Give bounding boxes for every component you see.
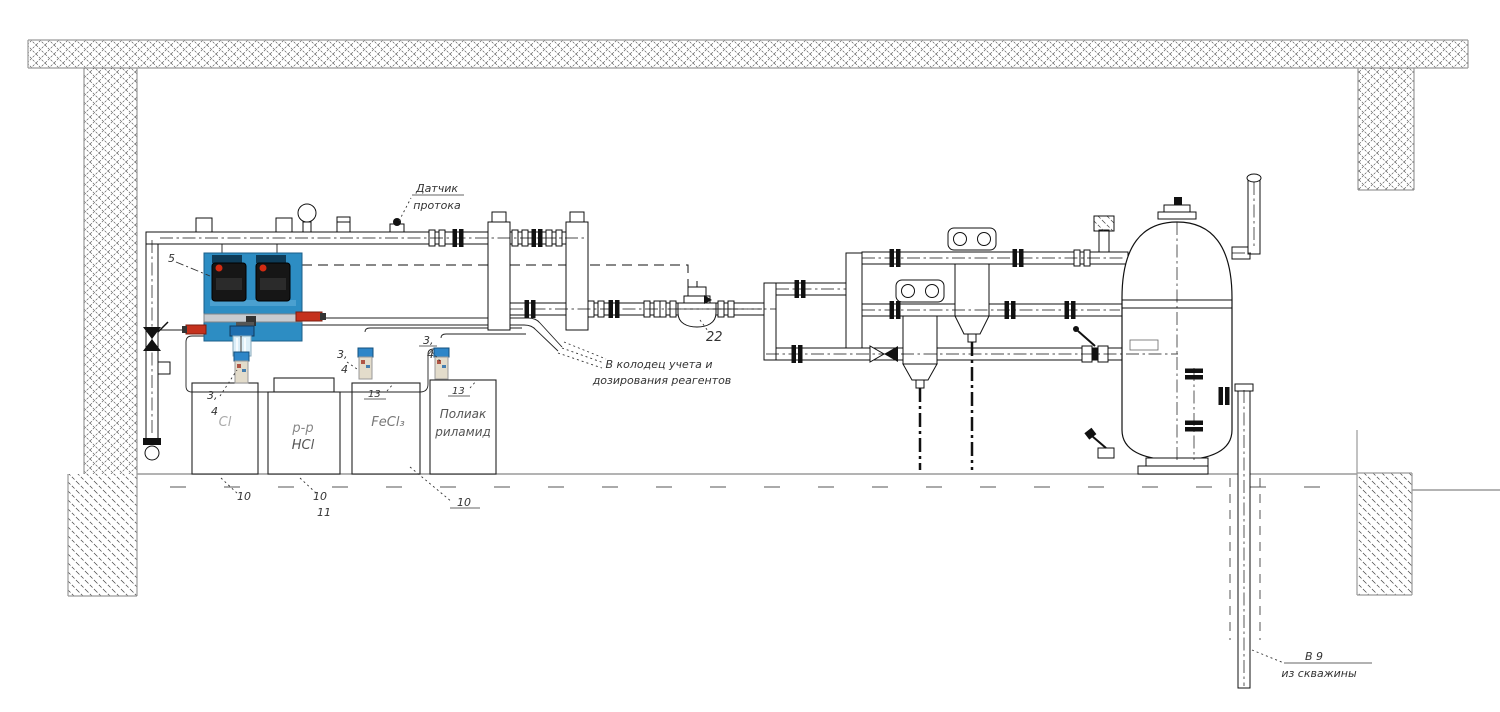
- dosing-panel: [182, 253, 326, 361]
- suction-lance-3: [434, 348, 449, 379]
- pipe-tag-box: [1130, 340, 1158, 350]
- right-wall-hatch: [1358, 68, 1414, 190]
- to-well-label-2: дозирования реагентов: [592, 374, 732, 387]
- injection-fitting-right: [296, 312, 322, 321]
- callout-lance3-b: 4: [427, 348, 434, 361]
- vent-cap: [1247, 174, 1261, 182]
- to-well-label-1: В колодец учета и: [605, 358, 712, 371]
- tank-3-label: FeCl₃: [371, 415, 404, 430]
- callout-tank2-num2: 11: [317, 506, 331, 519]
- flow-sensor-label-1: Датчик: [415, 182, 458, 195]
- tank-1-label: Cl: [219, 415, 232, 430]
- suction-lance-2: [358, 348, 373, 379]
- from-well-label-1: В 9: [1305, 650, 1323, 663]
- injection-fitting-left: [186, 325, 206, 334]
- engineering-drawing: Датчик протока В колодец учета и дозиров…: [0, 0, 1500, 712]
- drain-valve-icon: [1084, 428, 1114, 458]
- water-meter-icon: [678, 281, 716, 327]
- right-ground-hatch: [1357, 430, 1412, 595]
- dosing-pump-1-icon: [212, 263, 246, 301]
- callout-panel: 5: [168, 252, 175, 265]
- callout-lance2-b: 4: [341, 363, 348, 376]
- flow-sensor-label-2: протока: [413, 199, 461, 212]
- dosing-pump-2-icon: [256, 263, 290, 301]
- callout-tank1-num: 10: [237, 490, 251, 503]
- ceiling-hatch: [28, 40, 1468, 68]
- callout-tank2-num: 10: [313, 490, 327, 503]
- flow-sensor-icon: [390, 218, 404, 232]
- air-valve-icon: [1094, 216, 1114, 252]
- left-ground-hatch: [68, 474, 137, 596]
- tank-2-label-1: р-р: [291, 421, 313, 436]
- from-well-label-2: из скважины: [1281, 667, 1357, 680]
- left-wall-hatch: [84, 68, 137, 474]
- callout-lance1-b: 4: [211, 405, 218, 418]
- tank-4-label-1: Полиак: [440, 407, 487, 421]
- tank-2-label-2: HCl: [292, 438, 315, 453]
- callout-lance2-a: 3,: [337, 348, 348, 361]
- callout-tank3-id: 13: [368, 389, 381, 400]
- callout-lance3-a: 3,: [423, 334, 434, 347]
- pressure-gauge-icon: [298, 204, 316, 232]
- tank-4-label-2: риламид: [434, 425, 491, 439]
- callout-tank4-id: 13: [452, 386, 465, 397]
- callout-tank34-num: 10: [457, 496, 471, 509]
- callout-lance1-a: 3,: [207, 389, 218, 402]
- drain-tap-icon: [143, 438, 161, 460]
- callout-meter: 22: [706, 330, 723, 345]
